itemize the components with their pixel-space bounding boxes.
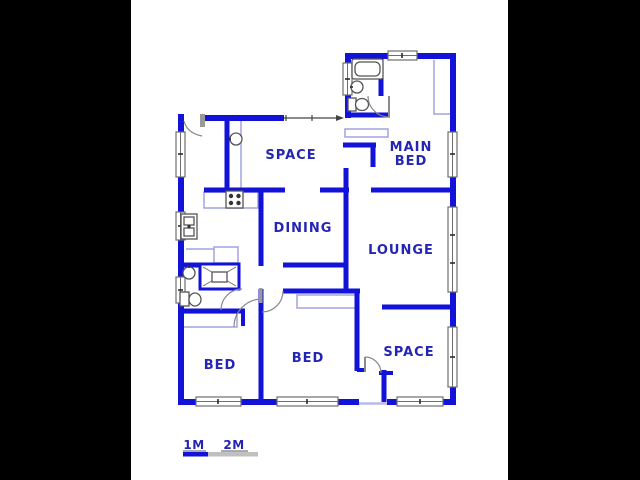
floor-plan-canvas: SPACE MAIN BED DINING LOUNGE BED BED SPA… bbox=[0, 0, 640, 480]
stove-burner bbox=[236, 201, 240, 205]
room-label-main-bed-line1: MAIN bbox=[390, 140, 433, 155]
stove-burner bbox=[229, 194, 233, 198]
stove-icon bbox=[226, 191, 243, 208]
toilet-bowl bbox=[189, 293, 201, 306]
main-bed-wardrobe bbox=[345, 129, 388, 137]
bathtub-inner bbox=[355, 62, 380, 76]
room-label-bed2: BED bbox=[292, 351, 325, 366]
toilet-icon bbox=[180, 292, 189, 306]
floor-plan-image: SPACE MAIN BED DINING LOUNGE BED BED SPA… bbox=[0, 0, 640, 480]
window-icon bbox=[176, 132, 185, 177]
shower-tray bbox=[212, 272, 227, 282]
toilet-icon bbox=[348, 98, 356, 111]
kitchen-counter-corner bbox=[214, 247, 238, 263]
room-label-main-bed-line2: BED bbox=[395, 154, 428, 169]
window-icon bbox=[448, 132, 457, 177]
toilet-bowl bbox=[356, 99, 369, 111]
scale-bar-2m bbox=[208, 452, 258, 457]
room-label-dining: DINING bbox=[274, 221, 333, 236]
scale-bar-1m bbox=[183, 452, 208, 457]
window-icon bbox=[448, 207, 457, 292]
window-icon bbox=[277, 397, 338, 406]
window-icon bbox=[388, 51, 417, 60]
bed1-wardrobe bbox=[180, 313, 237, 327]
stove-burner bbox=[229, 201, 233, 205]
window-icon bbox=[397, 397, 443, 406]
scale-label-1m: 1M bbox=[183, 438, 204, 452]
stove-burner bbox=[236, 194, 240, 198]
sink-basin bbox=[184, 228, 194, 236]
door-leaf bbox=[259, 288, 263, 303]
room-label-bed1: BED bbox=[204, 358, 237, 373]
light-fixture-icon bbox=[230, 133, 242, 145]
sink-basin bbox=[184, 217, 194, 225]
window-icon bbox=[196, 397, 241, 406]
door-leaf bbox=[200, 114, 205, 127]
room-label-space-bottom: SPACE bbox=[383, 345, 434, 360]
room-label-lounge: LOUNGE bbox=[368, 243, 434, 258]
basin-icon bbox=[183, 267, 195, 279]
scale-label-2m: 2M bbox=[223, 438, 244, 452]
room-label-space-top: SPACE bbox=[265, 148, 316, 163]
sink-tap bbox=[187, 225, 190, 228]
bed2-wardrobe bbox=[297, 295, 357, 308]
window-icon bbox=[448, 327, 457, 387]
window-icon bbox=[343, 63, 352, 95]
